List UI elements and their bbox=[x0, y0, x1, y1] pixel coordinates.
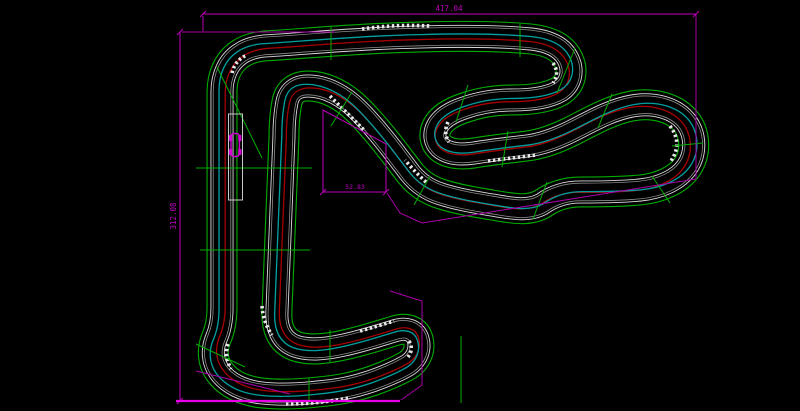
track-circuit[interactable] bbox=[210, 34, 697, 396]
dim-pocket-width-text: 52.83 bbox=[345, 183, 365, 191]
dim-top-width-text: 417.04 bbox=[435, 4, 463, 13]
track-cover-3 bbox=[213, 36, 693, 394]
cad-canvas[interactable]: 417.04 312.08 52.83 bbox=[0, 0, 800, 411]
dim-left-height-text: 312.08 bbox=[169, 202, 178, 230]
track-drawing: 417.04 312.08 52.83 bbox=[0, 0, 800, 411]
